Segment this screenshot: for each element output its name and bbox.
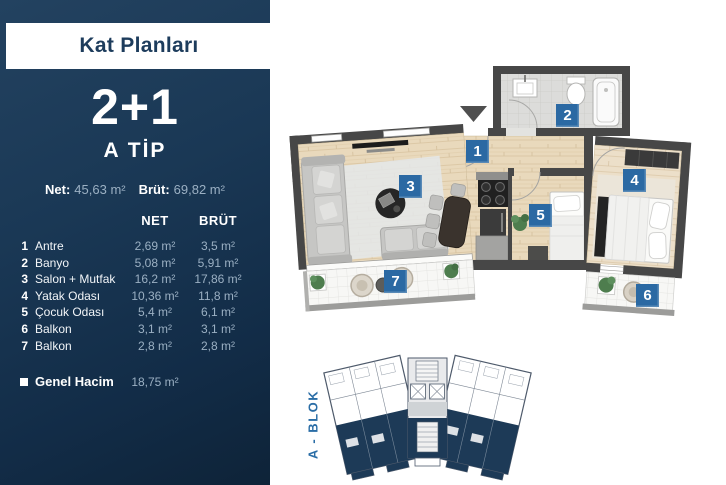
row-net: 5,08 m² <box>124 255 186 272</box>
entrance-arrow-icon <box>460 106 487 122</box>
keyplan-core <box>408 358 447 466</box>
stairs-icon <box>417 422 438 452</box>
row-brut: 3,5 m² <box>186 238 250 255</box>
row-net: 10,36 m² <box>124 288 186 305</box>
apartment-type-number: 2+1 <box>0 82 270 132</box>
row-net: 5,4 m² <box>124 304 186 321</box>
row-num: 4 <box>12 288 28 305</box>
balcony-6 <box>582 272 676 316</box>
total-label: Genel Hacim <box>28 374 124 389</box>
bathtub-icon <box>593 78 619 126</box>
kitchen-units <box>476 172 508 260</box>
double-bed-icon <box>594 194 673 263</box>
row-name: Balkon <box>28 338 124 355</box>
room-number-badge: 1 <box>466 140 489 163</box>
row-num: 1 <box>12 238 28 255</box>
row-num: 6 <box>12 321 28 338</box>
room-area-table: NET BRÜT 1 Antre 2,69 m² 3,5 m² 2 Banyo … <box>12 213 260 354</box>
row-brut: 11,8 m² <box>186 288 250 305</box>
room-number-badge: 3 <box>399 175 422 198</box>
room-number-badge: 5 <box>529 204 552 227</box>
row-name: Banyo <box>28 255 124 272</box>
row-num: 7 <box>12 338 28 355</box>
brut-column-header: BRÜT <box>186 213 250 238</box>
total-value: 18,75 m² <box>124 375 186 389</box>
room-number-badge: 4 <box>623 169 646 192</box>
row-name: Salon + Mutfak <box>28 271 124 288</box>
row-brut: 3,1 m² <box>186 321 250 338</box>
stairs-icon <box>416 361 438 381</box>
row-net: 2,69 m² <box>124 238 186 255</box>
nightstand-icon <box>528 246 548 260</box>
row-name: Çocuk Odası <box>28 304 124 321</box>
row-brut: 6,1 m² <box>186 304 250 321</box>
elevator-icon <box>411 384 426 399</box>
patio-chair-icon <box>350 274 373 297</box>
row-num: 3 <box>12 271 28 288</box>
page-title-box: Kat Planları <box>6 23 272 69</box>
toilet-icon <box>567 77 585 105</box>
row-name: Yatak Odası <box>28 288 124 305</box>
row-net: 16,2 m² <box>124 271 186 288</box>
row-name: Antre <box>28 238 124 255</box>
elevator-icon <box>430 384 445 399</box>
net-column-header: NET <box>124 213 186 238</box>
room-number-badge: 7 <box>384 270 407 293</box>
building-key-plan <box>320 330 535 482</box>
square-bullet-icon <box>20 378 28 386</box>
brut-summary: Brüt:69,82 m² <box>139 182 225 197</box>
floor-plan <box>288 48 726 340</box>
net-summary: Net:45,63 m² <box>45 182 126 197</box>
row-num: 2 <box>12 255 28 272</box>
page-title: Kat Planları <box>79 34 198 58</box>
loveseat-icon <box>380 223 448 261</box>
apartment-type-name: A TİP <box>0 139 270 163</box>
row-name: Balkon <box>28 321 124 338</box>
row-brut: 17,86 m² <box>186 271 250 288</box>
row-brut: 2,8 m² <box>186 338 250 355</box>
row-num: 5 <box>12 304 28 321</box>
info-sidebar: Kat Planları 2+1 A TİP Net:45,63 m² Brüt… <box>0 0 270 485</box>
row-net: 2,8 m² <box>124 338 186 355</box>
single-bed-icon <box>550 192 584 262</box>
kitchen-counter <box>476 236 508 260</box>
total-area-row: Genel Hacim 18,75 m² <box>12 374 260 389</box>
room-number-badge: 2 <box>556 104 579 127</box>
area-summary: Net:45,63 m² Brüt:69,82 m² <box>0 182 270 197</box>
block-label: A - BLOK <box>306 375 321 475</box>
row-brut: 5,91 m² <box>186 255 250 272</box>
row-net: 3,1 m² <box>124 321 186 338</box>
room-number-badge: 6 <box>636 284 659 307</box>
